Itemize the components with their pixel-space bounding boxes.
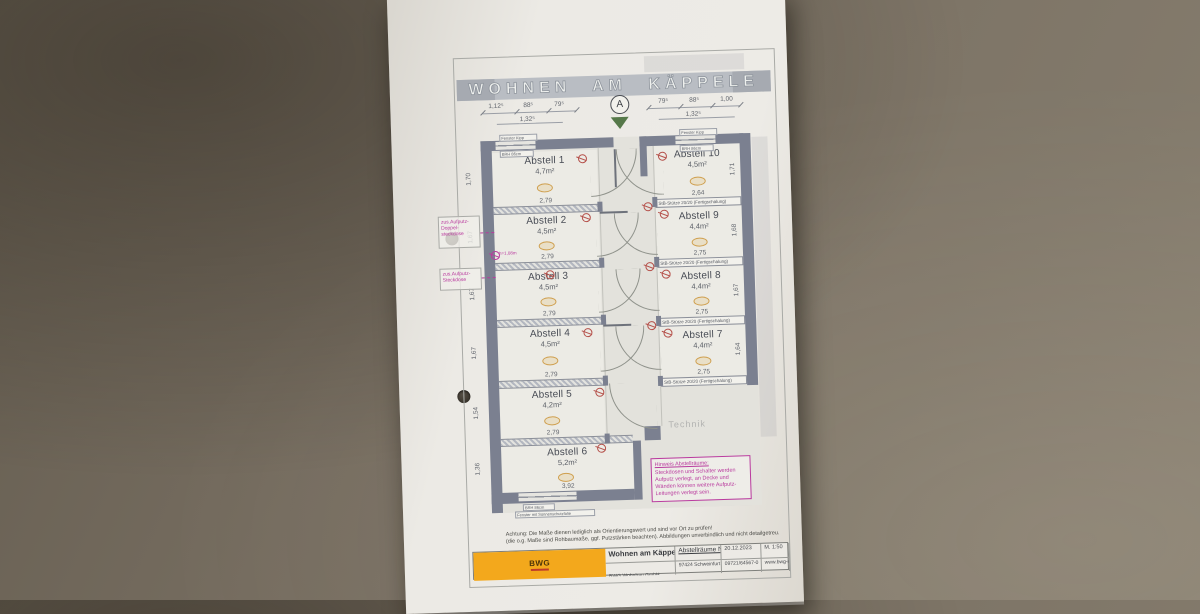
- hinweis-body: Steckdosen und Schalter werden Aufputz v…: [655, 467, 748, 498]
- wall-stub: [603, 376, 608, 386]
- room-abstell-6: Abstell 6 5,2m² 3,92: [501, 441, 634, 493]
- room-height-dim: 1,36: [474, 463, 481, 476]
- company-city: 97424 Schweinfurt: [676, 560, 722, 574]
- ceiling-lamp-icon: [544, 416, 560, 425]
- window-label: BRH 86cm: [680, 144, 714, 152]
- bwg-logo-rule: [531, 568, 549, 571]
- room-area: 4,5m²: [494, 225, 599, 237]
- ghost-print: [644, 53, 744, 72]
- north-arrow-icon: [611, 117, 629, 130]
- dim-value: 1,32⁵: [519, 116, 537, 124]
- room-area: 4,7m²: [492, 165, 597, 177]
- room-height-dim: 1,67: [471, 347, 478, 360]
- dim-value: 1,12⁵: [488, 103, 504, 110]
- drawing-title: Abstellräume Nr.32: [675, 545, 721, 561]
- room-area: 4,5m²: [498, 338, 603, 350]
- window-symbol: [495, 141, 535, 150]
- ceiling-lamp-icon: [695, 356, 711, 365]
- company-website: www.bwg-sw.de: [762, 558, 790, 572]
- company-cell: BWG Wohnbau GmbH Athenstraße 10: [606, 562, 676, 577]
- room-area: 4,4m²: [660, 339, 746, 351]
- room-height-dim: 1,64: [735, 342, 742, 355]
- plan-sheet: WOHNEN AM KÄPPELE 1,12⁵ 88⁵ 79⁵ 79⁵ 88⁵ …: [387, 0, 804, 614]
- ceiling-lamp-icon: [693, 296, 709, 305]
- company-phone: 09721/64567-0: [722, 559, 762, 573]
- room-height-dim: 1,54: [473, 407, 480, 420]
- ceiling-lamp-icon: [539, 241, 555, 250]
- ceiling-lamp-icon: [690, 176, 706, 185]
- room-height-dim: 1,71: [729, 163, 736, 176]
- room-area: 4,4m²: [656, 220, 742, 232]
- room-abstell-10: Abstell 10 4,5m² 2,64: [654, 143, 742, 199]
- margin-note-double-socket: zus.Aufputz-Doppel-steckdose: [438, 215, 481, 248]
- drawing-date: 20.12.2023: [721, 544, 761, 560]
- drawing-scale: M. 1:50: [761, 543, 789, 559]
- ceiling-lamp-icon: [542, 356, 558, 365]
- wall-stub: [601, 315, 606, 325]
- wall-stub: [597, 202, 602, 212]
- dim-value: 88⁵: [689, 97, 699, 104]
- window-label: Fenster Kipp: [679, 128, 717, 136]
- wall-stub: [605, 434, 610, 444]
- ceiling-lamp-icon: [558, 473, 574, 482]
- wall-stub: [652, 197, 657, 207]
- wall-stub: [658, 376, 663, 386]
- dim-value: 1,32⁵: [685, 110, 703, 118]
- window-label: Fenster Kipp: [499, 134, 537, 142]
- technik-room-label: Technik: [668, 418, 706, 429]
- bwg-logo-text: BWG: [529, 558, 550, 568]
- margin-note-socket: zus.Aufputz-Steckdose: [439, 267, 482, 290]
- ceiling-lamp-icon: [540, 297, 556, 306]
- dim-value: 79⁵: [554, 101, 564, 108]
- room-area: 4,4m²: [658, 280, 744, 292]
- ceiling-lamp-icon: [692, 237, 708, 246]
- hinweis-note-box: Hinweis Abstellräume: Steckdosen und Sch…: [650, 455, 751, 502]
- bwg-logo: BWG: [473, 549, 606, 581]
- room-area: 4,5m²: [654, 158, 740, 170]
- wall-stub: [654, 257, 659, 267]
- window-symbol: [675, 135, 715, 144]
- window-label: BRH 86cm: [500, 150, 534, 158]
- room-height-dim: 1,67: [733, 284, 740, 297]
- room-height-dim: 1,68: [731, 224, 738, 237]
- dim-value: 79⁵: [658, 98, 668, 105]
- ceiling-lamp-icon: [537, 183, 553, 192]
- photo-of-floor-plan: { "banner": { "title": "WOHNEN AM KÄPPEL…: [0, 0, 1200, 600]
- room-height-dim: 1,70: [465, 173, 472, 186]
- room-area: 4,2m²: [500, 399, 605, 411]
- dim-value: 1,00: [720, 95, 733, 102]
- wall-stub: [599, 258, 604, 268]
- room-area: 4,5m²: [496, 281, 601, 293]
- room-abstell-5: Abstell 5 4,2m² 2,79: [499, 384, 606, 439]
- dim-value: 88⁵: [523, 102, 533, 109]
- socket-height-label: h=1,08m: [499, 250, 517, 256]
